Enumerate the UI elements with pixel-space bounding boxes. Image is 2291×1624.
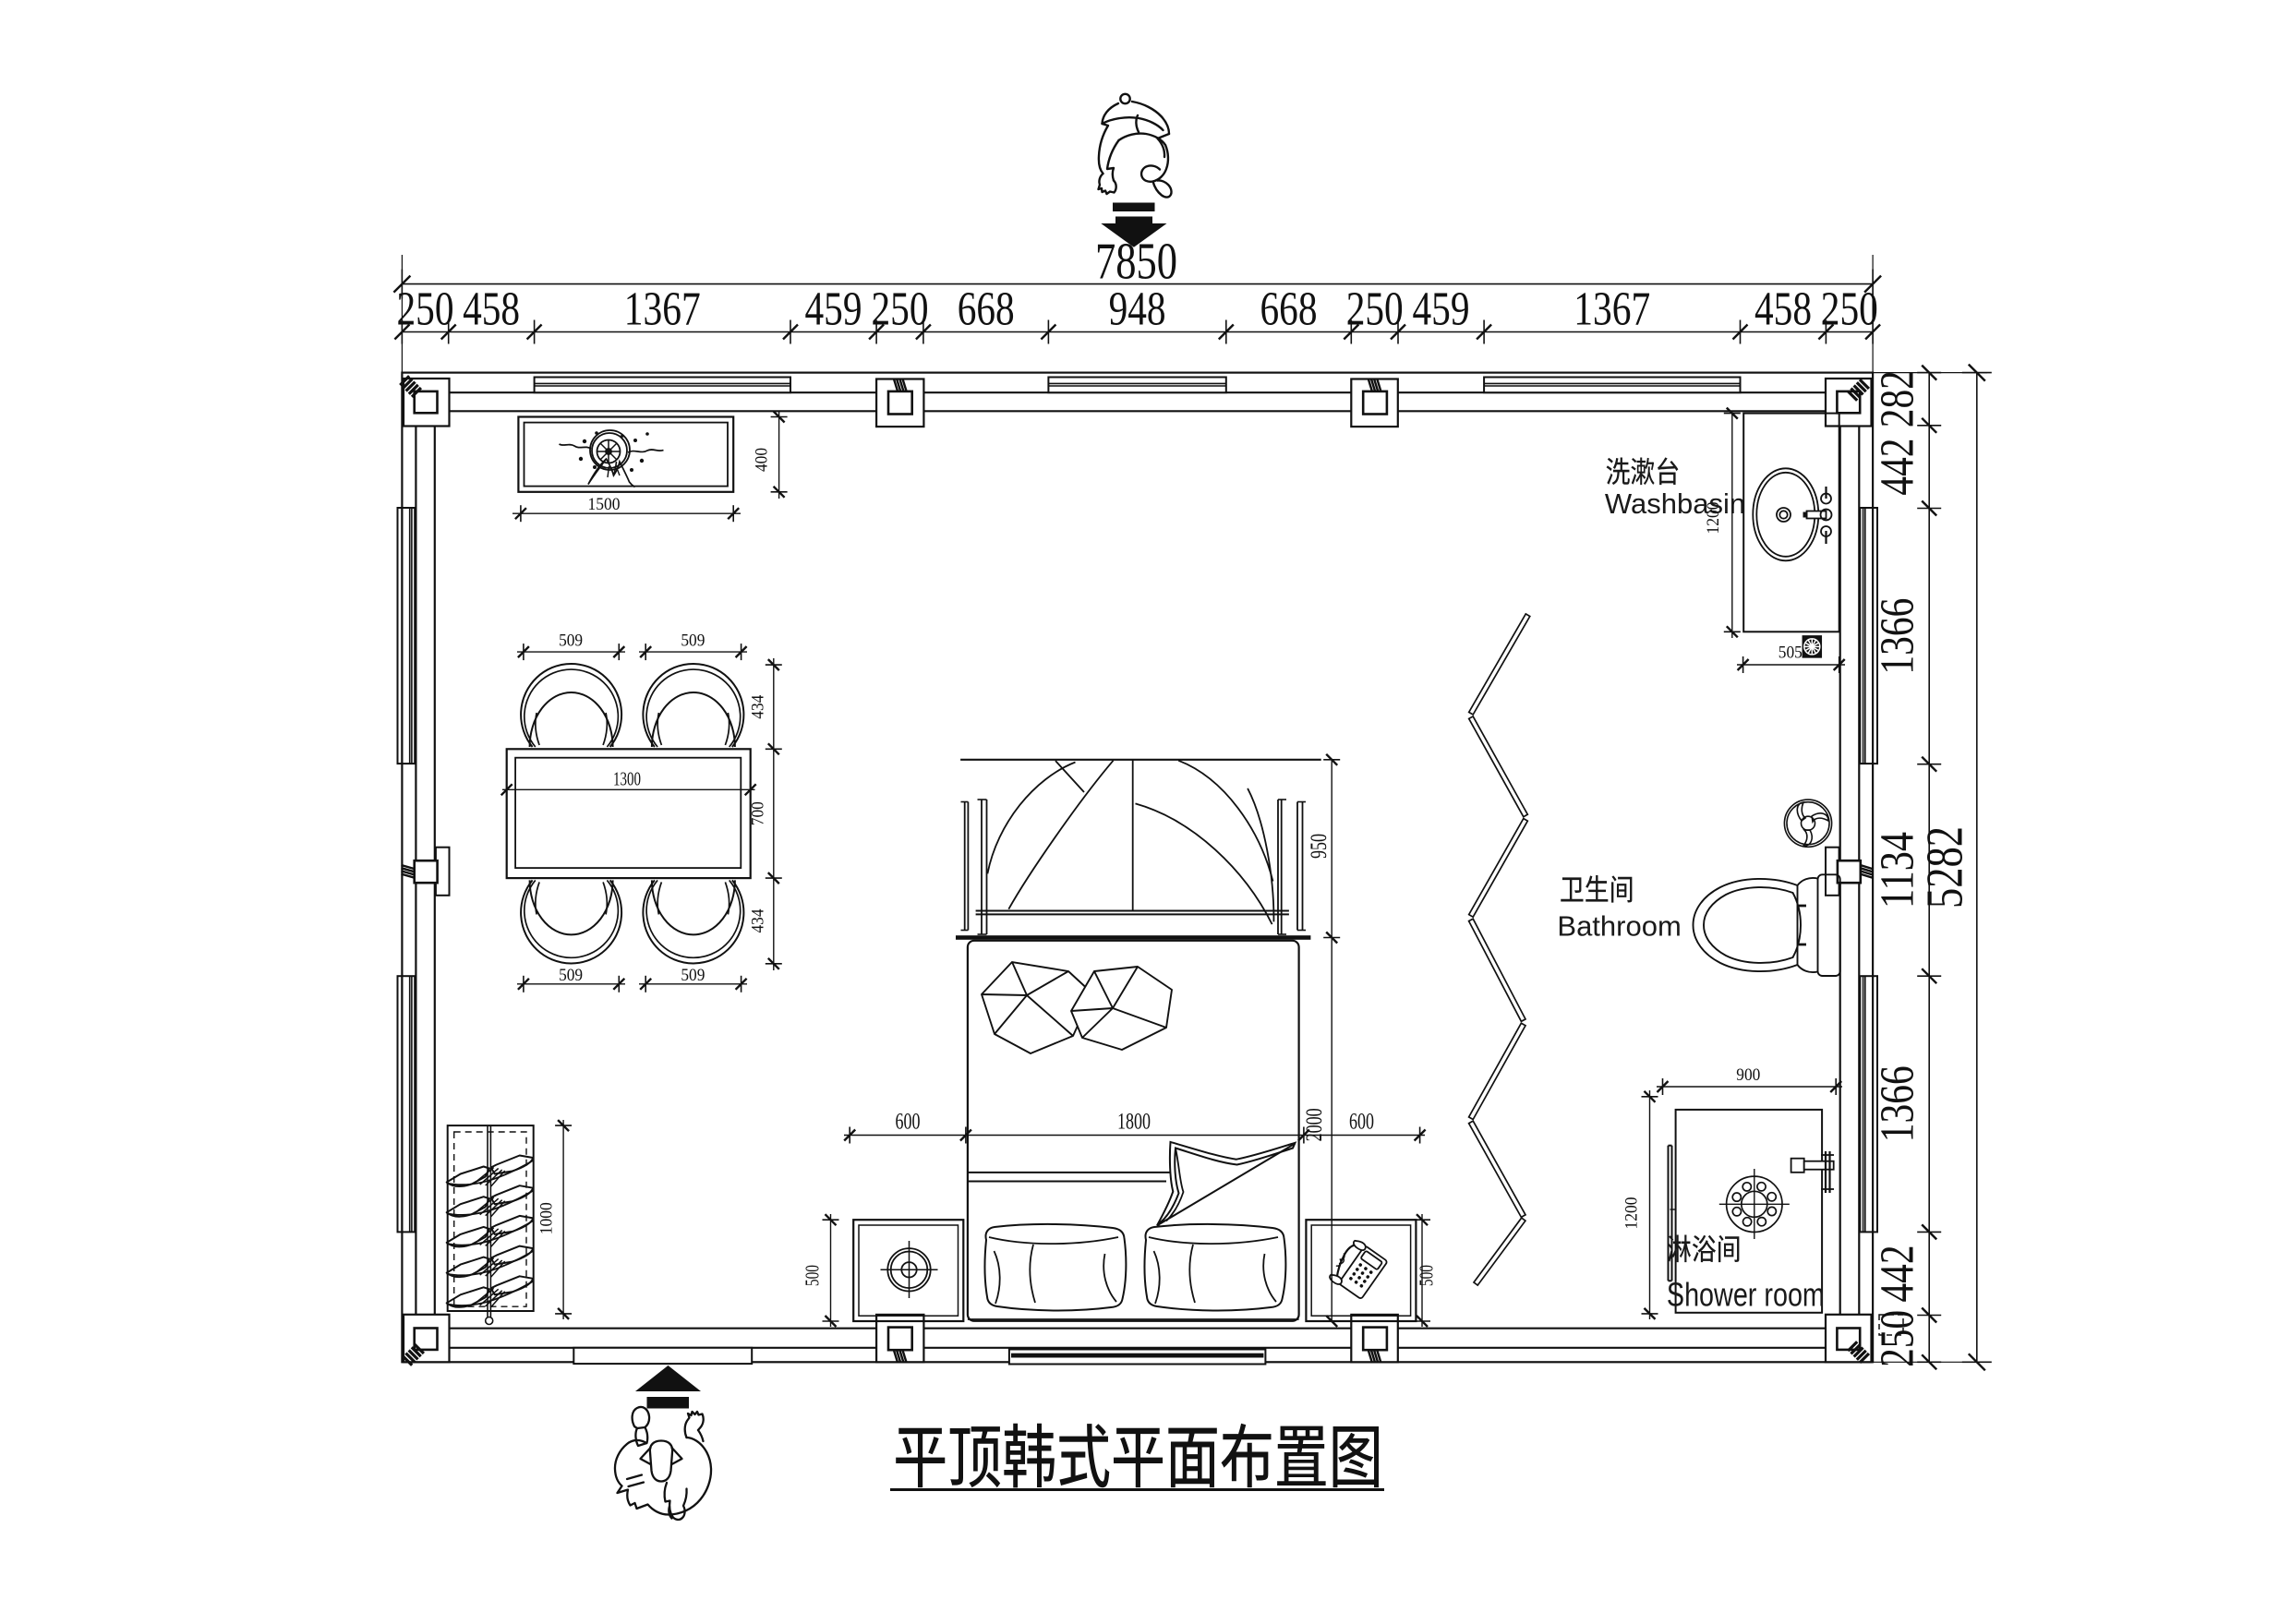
svg-text:1500: 1500: [588, 495, 621, 514]
svg-text:1800: 1800: [1117, 1108, 1151, 1135]
svg-text:950: 950: [1305, 834, 1332, 859]
svg-text:250: 250: [1346, 283, 1404, 336]
svg-text:900: 900: [1736, 1065, 1760, 1085]
svg-text:668: 668: [1260, 283, 1318, 336]
svg-text:2000: 2000: [1300, 1108, 1327, 1141]
svg-text:948: 948: [1109, 283, 1166, 336]
svg-text:600: 600: [1349, 1108, 1374, 1135]
svg-text:442: 442: [1872, 1245, 1924, 1303]
svg-text:442: 442: [1872, 439, 1924, 496]
svg-text:1000: 1000: [537, 1202, 557, 1234]
svg-text:509: 509: [681, 632, 705, 651]
svg-text:600: 600: [896, 1108, 921, 1135]
svg-text:400: 400: [753, 448, 772, 472]
svg-text:250: 250: [397, 283, 454, 336]
svg-text:500: 500: [802, 1265, 824, 1286]
svg-text:250: 250: [1821, 283, 1878, 336]
svg-text:509: 509: [681, 966, 705, 985]
svg-text:459: 459: [805, 283, 862, 336]
svg-text:1367: 1367: [1574, 283, 1650, 336]
svg-text:500: 500: [1416, 1265, 1438, 1286]
svg-text:509: 509: [559, 632, 583, 651]
svg-text:1200: 1200: [1622, 1197, 1642, 1230]
svg-text:250: 250: [872, 283, 929, 336]
svg-text:1367: 1367: [624, 283, 701, 336]
svg-text:5282: 5282: [1917, 826, 1974, 908]
svg-text:Bathroom: Bathroom: [1557, 910, 1681, 943]
svg-text:505: 505: [1779, 644, 1803, 663]
svg-text:458: 458: [463, 283, 520, 336]
svg-text:1300: 1300: [613, 768, 641, 790]
svg-text:668: 668: [958, 283, 1015, 336]
svg-text:1366: 1366: [1872, 598, 1924, 675]
svg-text:Washbasin: Washbasin: [1605, 487, 1745, 520]
svg-text:459: 459: [1413, 283, 1470, 336]
svg-text:700: 700: [749, 801, 768, 825]
svg-text:282: 282: [1872, 370, 1924, 427]
svg-text:Shower room: Shower room: [1667, 1276, 1825, 1314]
svg-text:434: 434: [749, 908, 768, 932]
svg-text:1366: 1366: [1872, 1065, 1924, 1142]
svg-text:458: 458: [1754, 283, 1812, 336]
svg-text:434: 434: [749, 694, 768, 718]
svg-text:509: 509: [559, 966, 583, 985]
